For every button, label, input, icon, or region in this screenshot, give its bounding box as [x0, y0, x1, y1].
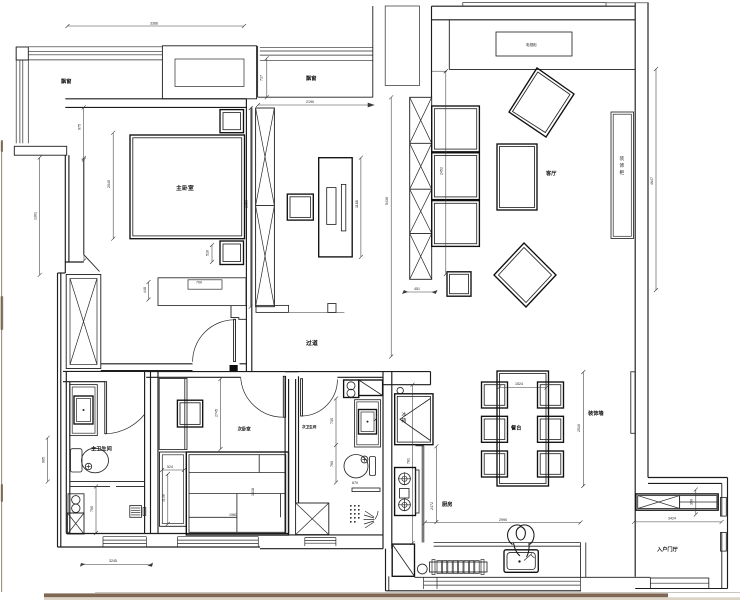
svg-text:2452: 2452: [440, 167, 444, 175]
svg-text:781: 781: [406, 458, 410, 464]
svg-text:餐台: 餐台: [510, 424, 521, 432]
svg-text:箱: 箱: [402, 417, 407, 424]
svg-text:装: 装: [620, 155, 625, 162]
svg-text:1188: 1188: [355, 200, 359, 208]
svg-text:2472: 2472: [430, 502, 434, 510]
svg-text:2510: 2510: [577, 424, 581, 432]
svg-text:1818: 1818: [251, 488, 255, 496]
svg-text:2040: 2040: [107, 180, 111, 188]
svg-text:3424: 3424: [668, 517, 676, 521]
svg-text:905: 905: [42, 457, 46, 463]
svg-text:5436: 5436: [385, 197, 389, 205]
svg-text:电视柜: 电视柜: [526, 42, 537, 47]
svg-text:柜: 柜: [620, 169, 625, 176]
svg-text:2745: 2745: [214, 409, 218, 417]
svg-text:448: 448: [143, 287, 147, 293]
svg-text:350: 350: [690, 499, 694, 505]
svg-text:750: 750: [90, 506, 94, 512]
svg-text:510: 510: [206, 250, 210, 256]
svg-text:451: 451: [414, 287, 420, 291]
svg-text:735: 735: [330, 418, 334, 424]
svg-text:2350: 2350: [245, 200, 249, 208]
svg-text:过道: 过道: [306, 339, 318, 347]
svg-text:4647: 4647: [650, 177, 654, 185]
svg-text:装饰墙: 装饰墙: [588, 409, 604, 417]
svg-text:700: 700: [196, 280, 202, 284]
svg-text:1138: 1138: [162, 494, 166, 502]
svg-text:2190: 2190: [306, 100, 314, 104]
svg-text:2990: 2990: [499, 518, 507, 522]
svg-text:冰: 冰: [402, 411, 407, 418]
svg-text:1960: 1960: [229, 513, 237, 517]
svg-text:3245: 3245: [109, 559, 117, 563]
svg-text:客厅: 客厅: [545, 169, 557, 177]
svg-text:次卫生间: 次卫生间: [302, 424, 317, 429]
svg-text:1524: 1524: [515, 382, 523, 386]
svg-text:975: 975: [78, 124, 82, 130]
svg-text:670: 670: [352, 481, 358, 485]
svg-text:入户门厅: 入户门厅: [656, 545, 679, 553]
svg-text:飘窗: 飘窗: [61, 77, 71, 85]
svg-text:760: 760: [330, 461, 334, 467]
svg-text:1361: 1361: [34, 212, 38, 220]
svg-text:厨房: 厨房: [442, 500, 452, 508]
svg-text:主卧室: 主卧室: [176, 184, 194, 192]
svg-text:717: 717: [260, 75, 264, 81]
svg-text:次卧室: 次卧室: [238, 426, 252, 433]
svg-text:飘窗: 飘窗: [306, 74, 316, 82]
svg-text:饰: 饰: [620, 162, 625, 169]
svg-text:3366: 3366: [150, 22, 158, 26]
svg-text:524: 524: [167, 465, 173, 469]
